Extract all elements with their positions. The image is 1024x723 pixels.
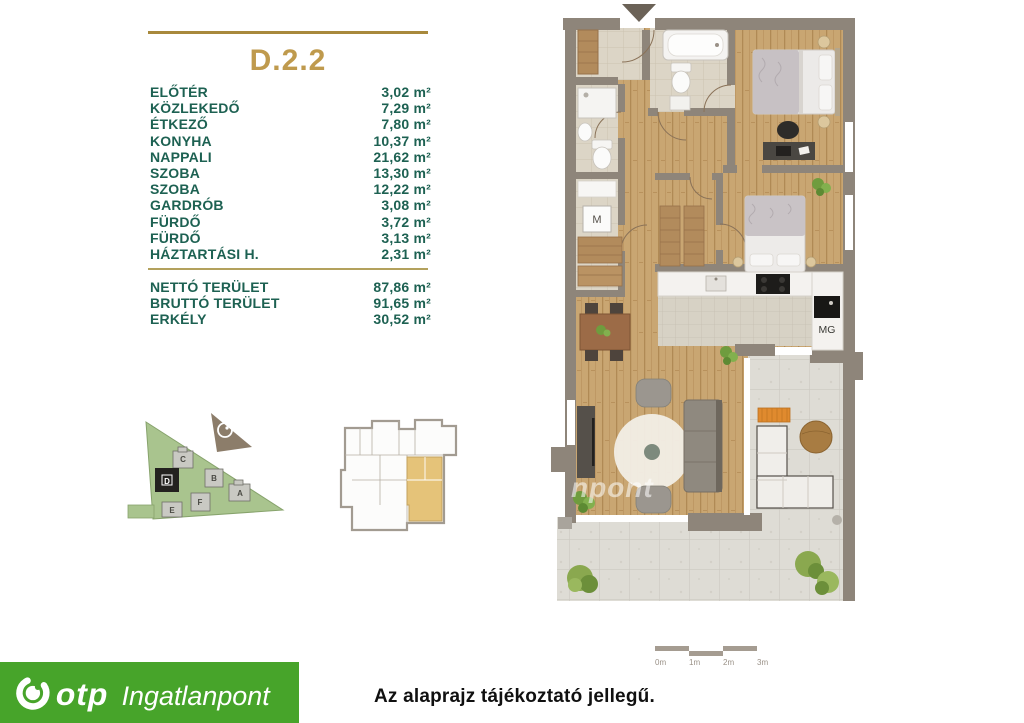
otp-logo: otp Ingatlanpont — [0, 662, 299, 723]
unit-title: D.2.2 — [148, 44, 428, 78]
tv-bench — [577, 406, 595, 478]
floor-plan: M — [540, 0, 875, 670]
watermark: npont — [571, 472, 654, 503]
listing-floorplan-page: D.2.2 ELŐTÉR3,02 m² KÖZLEKEDŐ7,29 m² ÉTK… — [0, 0, 1024, 723]
sofa — [684, 400, 722, 492]
terrace-planter — [558, 517, 572, 529]
kitchen-side-counter: MG — [812, 272, 843, 350]
room-row: FÜRDŐ3,72 m² — [150, 214, 431, 230]
laundry-bench — [578, 237, 622, 286]
room-name: FÜRDŐ — [150, 230, 201, 246]
svg-text:1m: 1m — [689, 658, 700, 667]
total-row: NETTÓ TERÜLET87,86 m² — [150, 279, 431, 295]
room-name: FÜRDŐ — [150, 214, 201, 230]
building-b: B — [205, 469, 223, 487]
site-plan: C D B A E F — [118, 400, 298, 535]
svg-text:3m: 3m — [757, 658, 768, 667]
room-area: 3,72 m² — [381, 214, 431, 230]
highlighted-unit — [407, 457, 442, 521]
svg-text:E: E — [169, 506, 175, 515]
disclaimer-text: Az alaprajz tájékoztató jellegű. — [374, 686, 714, 708]
brand-otp: otp — [56, 676, 109, 712]
room-area: 10,37 m² — [373, 133, 431, 149]
room-area: 3,13 m² — [381, 230, 431, 246]
room-row: FÜRDŐ3,13 m² — [150, 230, 431, 246]
room-area: 2,31 m² — [381, 246, 431, 262]
wc — [592, 140, 612, 169]
room-area: 7,80 m² — [381, 116, 431, 132]
room-area: 7,29 m² — [381, 100, 431, 116]
room-row: GARDRÓB3,08 m² — [150, 197, 431, 213]
brand-banner: otp Ingatlanpont — [0, 662, 299, 723]
building-d-highlighted: D — [155, 468, 179, 492]
room-row: SZOBA13,30 m² — [150, 165, 431, 181]
svg-text:D: D — [164, 477, 170, 486]
total-area: 87,86 m² — [373, 279, 431, 295]
room-area: 3,08 m² — [381, 197, 431, 213]
floor-key-plan — [332, 405, 466, 539]
otp-logo-icon — [14, 674, 51, 711]
outdoor-table — [800, 421, 832, 453]
building-f: F — [191, 493, 210, 511]
dishwasher-label: MG — [819, 324, 836, 336]
entry-wardrobe — [578, 30, 598, 74]
room-name: SZOBA — [150, 165, 200, 181]
totals-list: NETTÓ TERÜLET87,86 m² BRUTTÓ TERÜLET91,6… — [150, 279, 431, 328]
bed-2 — [733, 196, 816, 272]
room-area: 13,30 m² — [373, 165, 431, 181]
dishwasher — [814, 296, 840, 318]
washing-machine-label: M — [592, 214, 601, 226]
room-list: ELŐTÉR3,02 m² KÖZLEKEDŐ7,29 m² ÉTKEZŐ7,8… — [150, 84, 431, 262]
total-row: ERKÉLY30,52 m² — [150, 311, 431, 327]
room-area: 12,22 m² — [373, 181, 431, 197]
room-row: KÖZLEKEDŐ7,29 m² — [150, 100, 431, 116]
washing-machine: M — [583, 206, 611, 232]
svg-text:B: B — [211, 474, 217, 483]
bed-1 — [753, 36, 840, 128]
total-row: BRUTTÓ TERÜLET91,65 m² — [150, 295, 431, 311]
svg-text:0m: 0m — [655, 658, 666, 667]
outdoor-bench — [758, 408, 790, 422]
scale-bar: 0m 1m 2m 3m — [655, 646, 768, 667]
divider-top — [148, 31, 428, 34]
washbasin — [578, 123, 592, 141]
room-name: GARDRÓB — [150, 197, 224, 213]
desk-chair — [777, 121, 799, 139]
room-row: ÉTKEZŐ7,80 m² — [150, 116, 431, 132]
brand-suffix: Ingatlanpont — [122, 681, 272, 711]
room-area: 3,02 m² — [381, 84, 431, 100]
room-name: ELŐTÉR — [150, 84, 208, 100]
room-name: ÉTKEZŐ — [150, 116, 208, 132]
terrace-drain — [832, 515, 842, 525]
room-name: NAPPALI — [150, 149, 212, 165]
svg-text:A: A — [237, 489, 243, 498]
svg-text:2m: 2m — [723, 658, 734, 667]
room-row: HÁZTARTÁSI H.2,31 m² — [150, 246, 431, 262]
room-row: KONYHA10,37 m² — [150, 133, 431, 149]
divider-totals — [148, 268, 428, 270]
total-name: ERKÉLY — [150, 311, 207, 327]
shower — [578, 88, 616, 118]
room-row: NAPPALI21,62 m² — [150, 149, 431, 165]
total-area: 91,65 m² — [373, 295, 431, 311]
kitchen-counter — [658, 272, 812, 296]
room-name: SZOBA — [150, 181, 200, 197]
bathtub — [663, 30, 728, 60]
toilet — [671, 63, 691, 93]
total-name: NETTÓ TERÜLET — [150, 279, 268, 295]
total-name: BRUTTÓ TERÜLET — [150, 295, 280, 311]
room-name: KONYHA — [150, 133, 212, 149]
room-area: 21,62 m² — [373, 149, 431, 165]
svg-text:F: F — [198, 498, 203, 507]
total-area: 30,52 m² — [373, 311, 431, 327]
cooktop — [756, 274, 790, 294]
building-e: E — [162, 502, 182, 517]
bath-vanity — [670, 96, 690, 110]
room-row: ELŐTÉR3,02 m² — [150, 84, 431, 100]
room-name: HÁZTARTÁSI H. — [150, 246, 259, 262]
room-name: KÖZLEKEDŐ — [150, 100, 240, 116]
room-row: SZOBA12,22 m² — [150, 181, 431, 197]
laundry-counter — [578, 181, 616, 197]
entry-arrow-icon — [622, 4, 656, 22]
svg-text:C: C — [180, 455, 186, 464]
